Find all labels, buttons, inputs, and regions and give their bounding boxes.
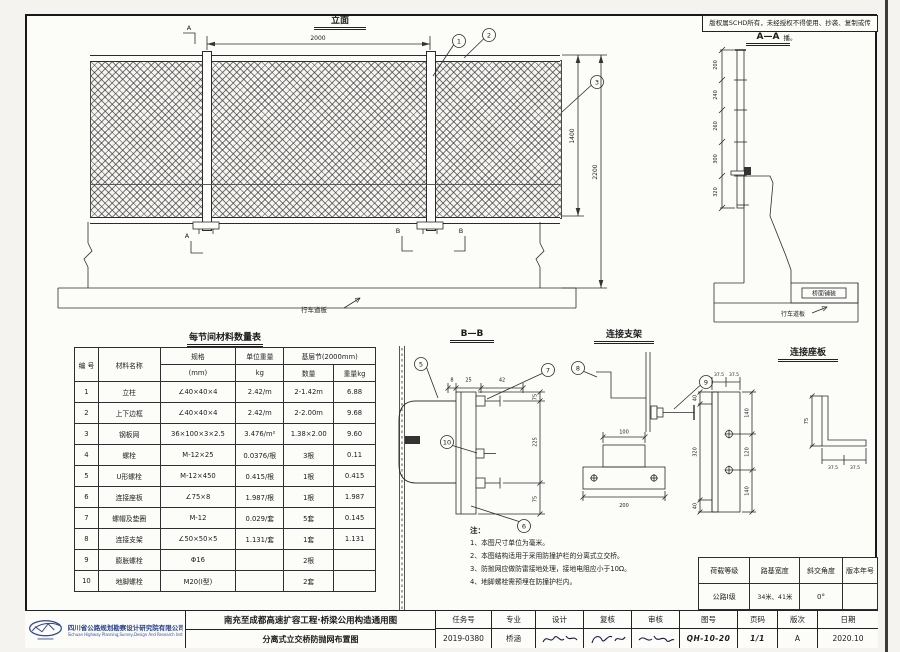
fence-post-left (202, 51, 212, 231)
table-row: 1立柱∠40×40×42.42/m2-1.42m6.88 (75, 382, 376, 403)
param-header: 荷载等级 (699, 558, 750, 584)
param-value: 34米、41米 (750, 584, 800, 610)
table-row: 2上下边框∠40×40×42.42/m2-2.00m9.68 (75, 403, 376, 424)
param-header: 版本年号 (842, 558, 877, 584)
field-value: 1/1 (738, 629, 777, 648)
cell-spec: ∠50×50×5 (160, 529, 236, 550)
param-value: 0° (800, 584, 843, 610)
cell-name: 螺栓 (98, 445, 160, 466)
col-header-spec-unit: (mm) (160, 365, 236, 382)
field-drawing-no: 图号 QH-10-20 (679, 611, 737, 648)
cell-unit: 1.987/根 (236, 487, 284, 508)
cell-name: 立柱 (98, 382, 160, 403)
material-table: 每节间材料数量表 编 号 材料名称 规格 单位重量 基层节(2000mm) (m… (74, 330, 376, 592)
fence-top-rail (90, 55, 560, 62)
cell-no: 3 (75, 424, 99, 445)
cell-no: 7 (75, 508, 99, 529)
cell-spec: M-12×450 (160, 466, 236, 487)
cell-name: 地脚螺栓 (98, 571, 160, 592)
drawing-title: 分离式立交桥防抛网布置图 (186, 630, 435, 648)
note-item: 3、防抛网应做防雷接地处理，接地电阻应小于10Ω。 (470, 563, 698, 576)
cell-spec: Φ16 (160, 550, 236, 571)
cell-weight: 1.987 (334, 487, 376, 508)
note-item: 4、地脚螺栓需预埋在防撞护栏内。 (470, 576, 698, 589)
field-label: 图号 (680, 611, 737, 629)
section-bb-title: B—B (450, 329, 494, 343)
field-value: A (778, 629, 817, 648)
elevation-deck-label: 行车道板 (284, 304, 344, 314)
field-specialty: 专业 桥涵 (491, 611, 535, 648)
cell-qty: 2-2.00m (284, 403, 334, 424)
design-parameters-grid: 荷载等级 路基宽度 斜交角度 版本年号 公路Ⅰ级 34米、41米 0° (698, 557, 878, 610)
col-header-weight: 重量kg (334, 365, 376, 382)
cell-spec: ∠40×40×4 (160, 403, 236, 424)
table-row: 8连接支架∠50×50×51.131/套1套1.131 (75, 529, 376, 550)
table-row: 9膨胀螺栓Φ162根 (75, 550, 376, 571)
table-row: 6连接座板∠75×81.987/根1根1.987 (75, 487, 376, 508)
cell-no: 10 (75, 571, 99, 592)
table-row: 3钢板网36×100×3×2.53.476/m²1.38×2.009.60 (75, 424, 376, 445)
param-header: 斜交角度 (800, 558, 843, 584)
field-task-no: 任务号 2019-0380 (435, 611, 491, 648)
barrier-top-edge-line (90, 184, 560, 185)
cell-unit (236, 550, 284, 571)
cell-weight: 9.68 (334, 403, 376, 424)
cell-qty: 1根 (284, 487, 334, 508)
cell-no: 6 (75, 487, 99, 508)
cell-weight (334, 571, 376, 592)
drawing-sheet: 版权属SCHD所有，未经授权不得使用、抄袭、复制或传播。 立面 A—A B—B … (0, 0, 900, 652)
col-header-unit-weight: 单位重量 (236, 348, 284, 365)
cell-no: 5 (75, 466, 99, 487)
table-row: 10地脚螺栓M20(Ⅰ型)2套 (75, 571, 376, 592)
cell-unit: 2.42/m (236, 403, 284, 424)
cell-spec: M20(Ⅰ型) (160, 571, 236, 592)
cell-unit: 0.0376/根 (236, 445, 284, 466)
cell-spec: M-12 (160, 508, 236, 529)
cell-unit: 0.029/套 (236, 508, 284, 529)
note-item: 1、本图尺寸单位为毫米。 (470, 537, 698, 550)
cell-qty: 1套 (284, 529, 334, 550)
cell-no: 8 (75, 529, 99, 550)
cell-unit: 3.476/m² (236, 424, 284, 445)
field-revision: 版次 A (777, 611, 817, 648)
cell-spec: ∠75×8 (160, 487, 236, 508)
scan-edge-line (885, 0, 888, 652)
cell-no: 2 (75, 403, 99, 424)
section-aa-title: A—A (746, 32, 790, 46)
cell-weight: 9.60 (334, 424, 376, 445)
cell-unit: 2.42/m (236, 382, 284, 403)
cell-name: 钢板网 (98, 424, 160, 445)
notes-block: 注： 1、本图尺寸单位为毫米。 2、本图结构适用于采用防撞护栏的分离式立交桥。 … (470, 524, 698, 589)
field-page: 页码 1/1 (737, 611, 777, 648)
project-cell: 南充至成都高速扩容工程·桥梁公用构造通用图 分离式立交桥防抛网布置图 (185, 611, 435, 648)
cell-name: U形螺栓 (98, 466, 160, 487)
cell-no: 1 (75, 382, 99, 403)
cell-weight: 0.415 (334, 466, 376, 487)
material-table-grid: 编 号 材料名称 规格 单位重量 基层节(2000mm) (mm) kg 数量 … (74, 347, 376, 592)
material-table-title: 每节间材料数量表 (74, 330, 376, 343)
company-name: 四川省公路规划勘察设计研究院有限公司 (68, 622, 183, 632)
field-label: 设计 (536, 611, 583, 629)
cell-spec: ∠40×40×4 (160, 382, 236, 403)
project-title: 南充至成都高速扩容工程·桥梁公用构造通用图 (186, 611, 435, 630)
cell-weight: 1.131 (334, 529, 376, 550)
fence-post-right (426, 51, 436, 231)
cell-qty: 1根 (284, 466, 334, 487)
company-logo-icon (27, 617, 66, 643)
copyright-notice: 版权属SCHD所有，未经授权不得使用、抄袭、复制或传播。 (702, 15, 878, 32)
field-auditor: 审核 (631, 611, 679, 648)
cell-name: 连接座板 (98, 487, 160, 508)
design-parameters-table: 荷载等级 路基宽度 斜交角度 版本年号 公路Ⅰ级 34米、41米 0° (698, 557, 878, 610)
col-header-kg: kg (236, 365, 284, 382)
field-reviewer: 复核 (583, 611, 631, 648)
field-value: 桥涵 (492, 629, 535, 648)
cell-weight: 6.88 (334, 382, 376, 403)
cell-unit (236, 571, 284, 592)
auditor-signature (632, 629, 679, 648)
col-header-name: 材料名称 (98, 348, 160, 382)
mesh-panel-middle (211, 60, 428, 219)
reviewer-signature (584, 629, 631, 648)
field-label: 任务号 (436, 611, 491, 629)
cell-qty: 2-1.42m (284, 382, 334, 403)
param-value (842, 584, 877, 610)
bracket-view-title: 连接支架 (594, 327, 654, 344)
field-date: 日期 2020.10 (817, 611, 878, 648)
param-value: 公路Ⅰ级 (699, 584, 750, 610)
field-designer: 设计 (535, 611, 583, 648)
cell-weight: 0.145 (334, 508, 376, 529)
title-block: 四川省公路规划勘察设计研究院有限公司 Sichuan Highway Plann… (25, 610, 878, 648)
company-names: 四川省公路规划勘察设计研究院有限公司 Sichuan Highway Plann… (68, 622, 183, 637)
field-label: 页码 (738, 611, 777, 629)
col-header-qty: 数量 (284, 365, 334, 382)
field-label: 版次 (778, 611, 817, 629)
table-row: 7螺帽及垫圈M-120.029/套5套0.145 (75, 508, 376, 529)
col-header-section: 基层节(2000mm) (284, 348, 376, 365)
cell-qty: 3根 (284, 445, 334, 466)
field-label: 专业 (492, 611, 535, 629)
cell-spec: M-12×25 (160, 445, 236, 466)
field-label: 日期 (818, 611, 878, 629)
cell-weight: 0.11 (334, 445, 376, 466)
field-value: 2019-0380 (436, 629, 491, 648)
company-cell: 四川省公路规划勘察设计研究院有限公司 Sichuan Highway Plann… (25, 611, 185, 648)
cell-unit: 0.415/根 (236, 466, 284, 487)
field-value: 2020.10 (818, 629, 878, 648)
cell-name: 螺帽及垫圈 (98, 508, 160, 529)
mesh-panel-left (90, 60, 205, 219)
cell-name: 连接支架 (98, 529, 160, 550)
cell-qty: 5套 (284, 508, 334, 529)
field-label: 复核 (584, 611, 631, 629)
designer-signature (536, 629, 583, 648)
cell-qty: 2根 (284, 550, 334, 571)
notes-label: 注： (470, 524, 698, 537)
col-header-no: 编 号 (75, 348, 99, 382)
cell-no: 9 (75, 550, 99, 571)
cell-no: 4 (75, 445, 99, 466)
note-item: 2、本图结构适用于采用防撞护栏的分离式立交桥。 (470, 550, 698, 563)
table-row: 4螺栓M-12×250.0376/根3根0.11 (75, 445, 376, 466)
fence-bottom-rail (90, 217, 560, 224)
cell-qty: 1.38×2.00 (284, 424, 334, 445)
mesh-panel-right (435, 60, 562, 219)
cell-spec: 36×100×3×2.5 (160, 424, 236, 445)
cell-weight (334, 550, 376, 571)
param-header: 路基宽度 (750, 558, 800, 584)
field-label: 审核 (632, 611, 679, 629)
cell-name: 上下边框 (98, 403, 160, 424)
cell-unit: 1.131/套 (236, 529, 284, 550)
table-row: 5U形螺栓M-12×4500.415/根1根0.415 (75, 466, 376, 487)
elevation-title: 立面 (314, 13, 366, 30)
cell-name: 膨胀螺栓 (98, 550, 160, 571)
company-name-en: Sichuan Highway Planning,Survey,Design A… (68, 632, 183, 637)
col-header-spec: 规格 (160, 348, 236, 365)
cell-qty: 2套 (284, 571, 334, 592)
field-value: QH-10-20 (680, 629, 737, 648)
seat-plate-view-title: 连接座板 (778, 345, 838, 362)
